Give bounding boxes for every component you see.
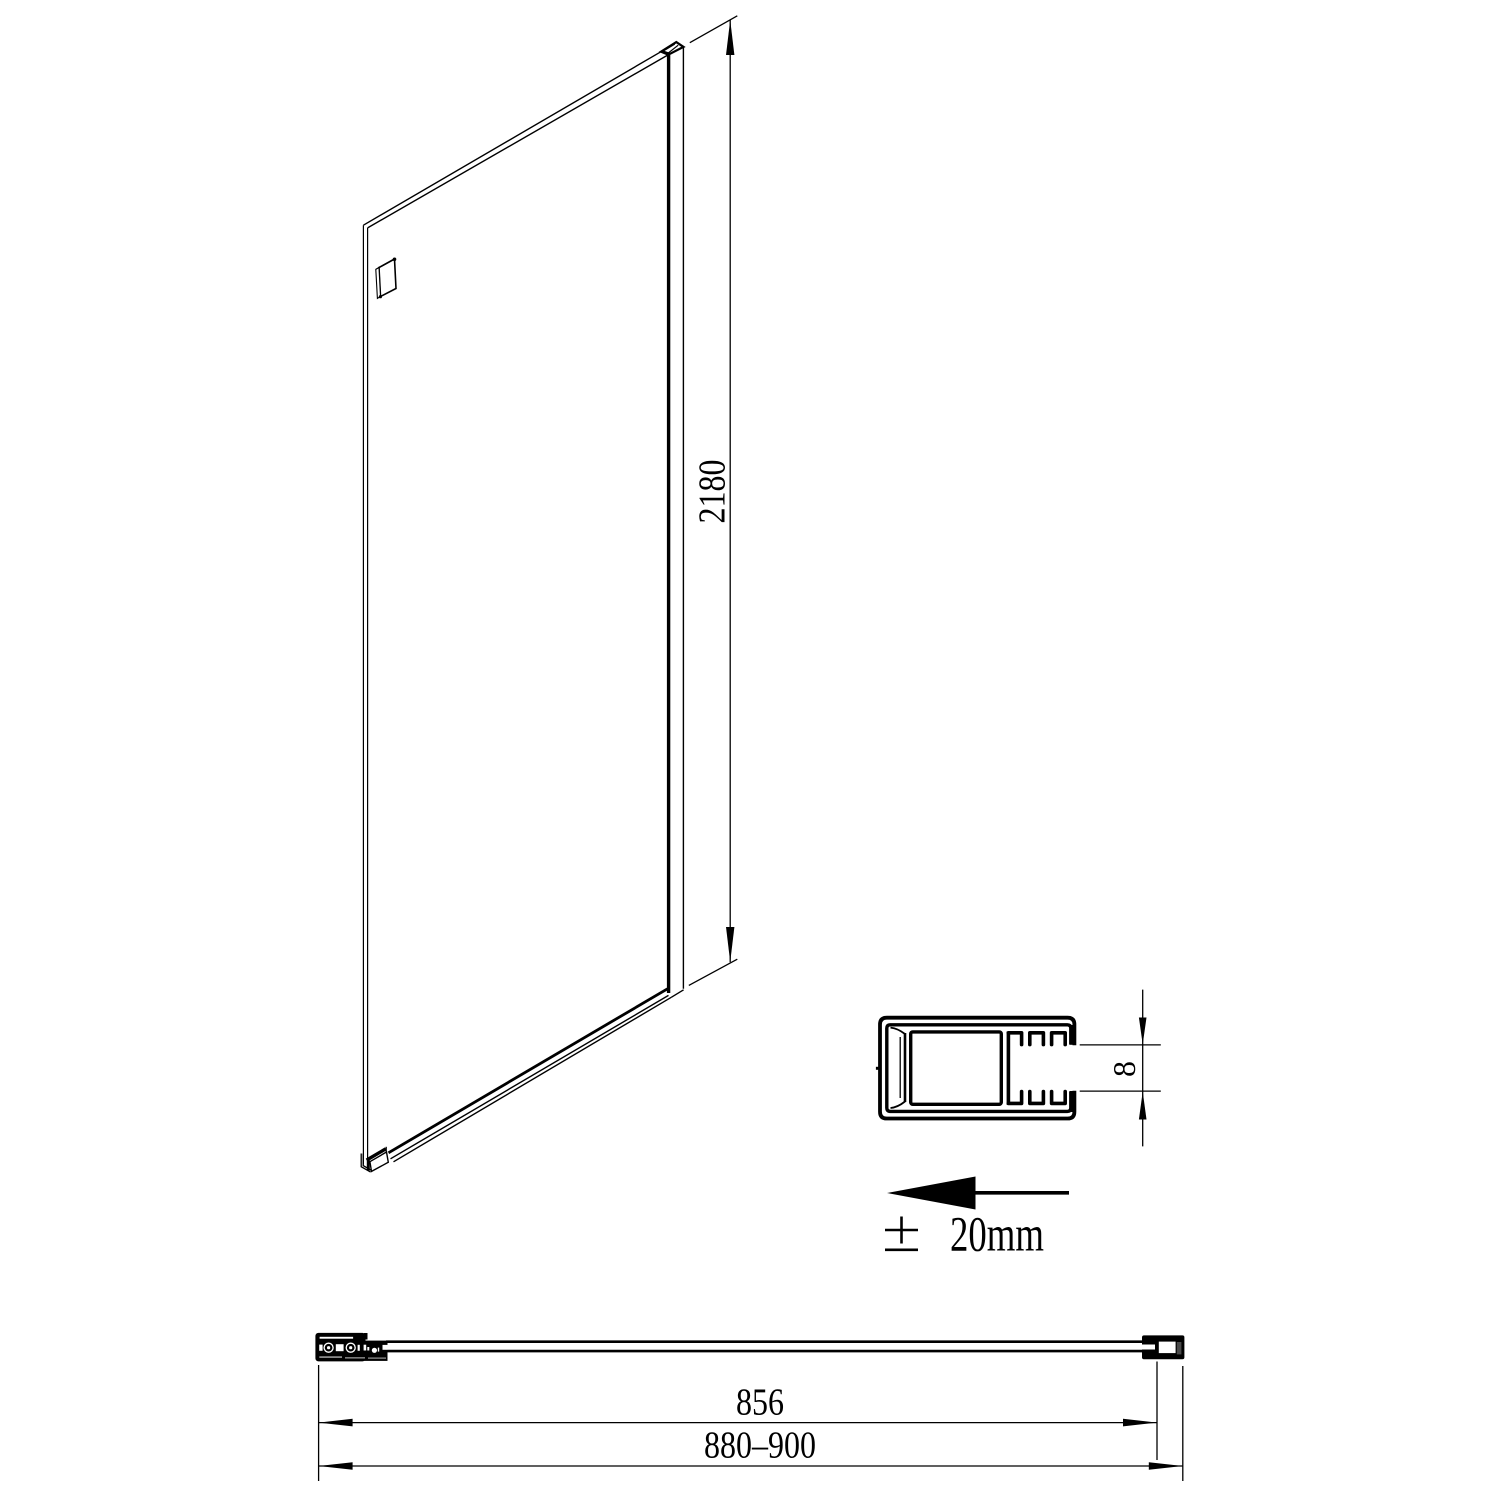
svg-text:880–900: 880–900 (704, 1425, 816, 1467)
svg-text:856: 856 (736, 1381, 784, 1423)
svg-text:2180: 2180 (692, 460, 734, 524)
svg-text:8: 8 (1106, 1061, 1142, 1077)
svg-text:20mm: 20mm (950, 1206, 1044, 1262)
